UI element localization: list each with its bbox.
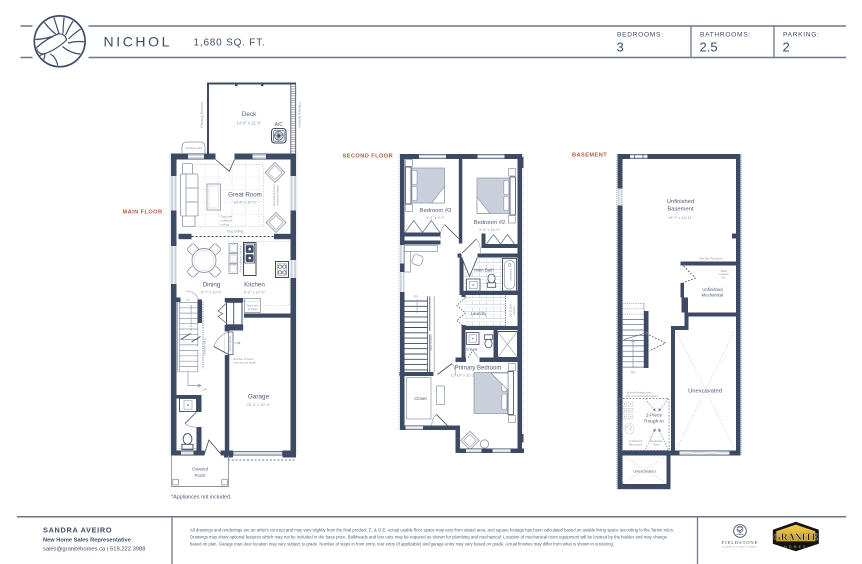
svg-text:A GRANITE HOMES COMPANY: A GRANITE HOMES COMPANY [723,545,758,548]
svg-text:Dining: Dining [203,282,221,289]
svg-text:Basement: Basement [667,207,693,213]
svg-text:Etc.: Etc. [722,276,727,280]
svg-text:ceiling: ceiling [221,223,230,227]
svg-text:Backwater: Backwater [650,439,663,443]
svg-text:Main Bath: Main Bath [474,268,494,273]
svg-text:2: 2 [783,40,790,55]
svg-text:Privacy Screen: Privacy Screen [200,102,204,128]
svg-text:Up 14 risers w/ handrail: Up 14 risers w/ handrail [190,304,193,331]
svg-text:Privacy Screen: Privacy Screen [298,102,302,128]
svg-text:Kitchen: Kitchen [244,282,265,289]
svg-text:Water line: Water line [247,304,259,308]
svg-text:Extra cabinets this side: Extra cabinets this side [239,245,243,272]
svg-text:Window wall: Window wall [185,146,201,150]
svg-text:3: 3 [617,40,624,55]
svg-text:with optional finished stairs: with optional finished stairs [626,394,659,398]
svg-text:BEDROOMS:: BEDROOMS: [617,32,664,39]
svg-text:Deck: Deck [242,111,257,118]
svg-text:14'-0" x 12'-0": 14'-0" x 12'-0" [236,121,262,126]
svg-text:UP: UP [631,371,635,375]
svg-text:12'-10" x 11'-1": 12'-10" x 11'-1" [451,374,476,378]
svg-text:Unfinished: Unfinished [667,199,694,205]
svg-text:Door to garage: Door to garage [229,335,232,351]
svg-text:cabinetry: cabinetry [513,305,516,316]
svg-text:*Appliances not included.: *Appliances not included. [171,494,232,500]
svg-text:sales@granitehomes.ca | 519.22: sales@granitehomes.ca | 519.222.3988 [43,547,145,553]
svg-text:Ensuite: Ensuite [466,348,477,352]
svg-text:SECOND FLOOR: SECOND FLOOR [343,154,394,160]
svg-text:Porch: Porch [195,473,207,478]
svg-text:Tub/shower: Tub/shower [509,268,512,281]
svg-text:18'-5" x 12'-0": 18'-5" x 12'-0" [233,201,257,205]
svg-text:UP: UP [203,388,207,392]
svg-text:BASEMENT: BASEMENT [572,153,607,159]
svg-text:10'-0" x 20'-0": 10'-0" x 20'-0" [247,403,271,407]
svg-text:to fridge: to fridge [248,307,258,311]
svg-text:Mechanical: Mechanical [629,442,643,446]
svg-text:All drawings and renderings ar: All drawings and renderings are an artis… [190,528,674,533]
svg-text:Dn: Dn [414,295,418,299]
svg-text:Softener: Softener [719,272,729,276]
svg-text:Closet: Closet [414,396,427,401]
svg-text:Bedroom #2: Bedroom #2 [474,220,506,226]
svg-text:Great Room: Great Room [228,192,262,199]
svg-text:may vary by grade: may vary by grade [233,361,256,365]
svg-text:Water: Water [720,269,727,273]
svg-text:of shorter heights: of shorter heights [275,184,279,205]
svg-text:PARKING:: PARKING: [783,32,820,39]
svg-text:9'-2" x 9'-9": 9'-2" x 9'-9" [426,216,445,220]
svg-text:Unexcavated: Unexcavated [633,470,655,474]
svg-text:Unfinished: Unfinished [702,287,723,292]
svg-text:Rough-In: Rough-In [644,419,664,425]
svg-text:SANDRA AVEIRO: SANDRA AVEIRO [43,526,112,535]
svg-text:Garage: Garage [248,394,270,401]
svg-text:2.5: 2.5 [700,40,718,55]
svg-text:Optional finished area: Optional finished area [626,391,653,395]
svg-text:A/C: A/C [275,122,284,128]
svg-text:Drawings may show optional fea: Drawings may show optional features whic… [190,535,667,540]
svg-text:based on plan. Garage man door: based on plan. Garage man door location … [190,542,614,547]
svg-text:New Home Sales Representative: New Home Sales Representative [43,538,131,544]
svg-text:BATHROOMS:: BATHROOMS: [700,32,751,39]
svg-text:NICHOL: NICHOL [104,34,173,50]
svg-text:18'-7" x 14'-11": 18'-7" x 14'-11" [668,216,693,220]
svg-text:GRANITE: GRANITE [773,532,818,543]
svg-text:Up: Up [186,298,190,302]
svg-text:Laundry: Laundry [471,311,488,316]
svg-text:Unexcavated: Unexcavated [688,389,722,395]
svg-text:Tray Ceiling: Tray Ceiling [227,229,244,233]
svg-text:Mechanical: Mechanical [702,293,724,298]
svg-text:FIELDSTONE: FIELDSTONE [722,540,759,545]
svg-text:Open to below: Open to below [430,335,433,351]
svg-text:Bedroom #3: Bedroom #3 [420,208,452,214]
svg-text:2-Piece: 2-Piece [646,413,663,419]
svg-text:9'-7" x 10'-0": 9'-7" x 10'-0" [201,291,223,295]
svg-text:Optional railing: Optional railing [204,338,207,355]
svg-text:HOMES: HOMES [784,545,807,549]
svg-text:MAIN FLOOR: MAIN FLOOR [123,210,163,216]
svg-text:Primary Bedroom: Primary Bedroom [455,366,502,372]
svg-text:Covered: Covered [192,467,208,472]
svg-text:1,680 SQ. FT.: 1,680 SQ. FT. [194,38,266,49]
svg-text:8'-9" x 12'-0": 8'-9" x 12'-0" [244,291,266,295]
svg-text:Valve: Valve [653,442,660,446]
svg-text:Wet Bar Rough-In: Wet Bar Rough-In [699,256,723,260]
svg-text:Unfinished: Unfinished [629,439,642,443]
svg-text:9'-6" x 14'-0": 9'-6" x 14'-0" [479,228,500,232]
